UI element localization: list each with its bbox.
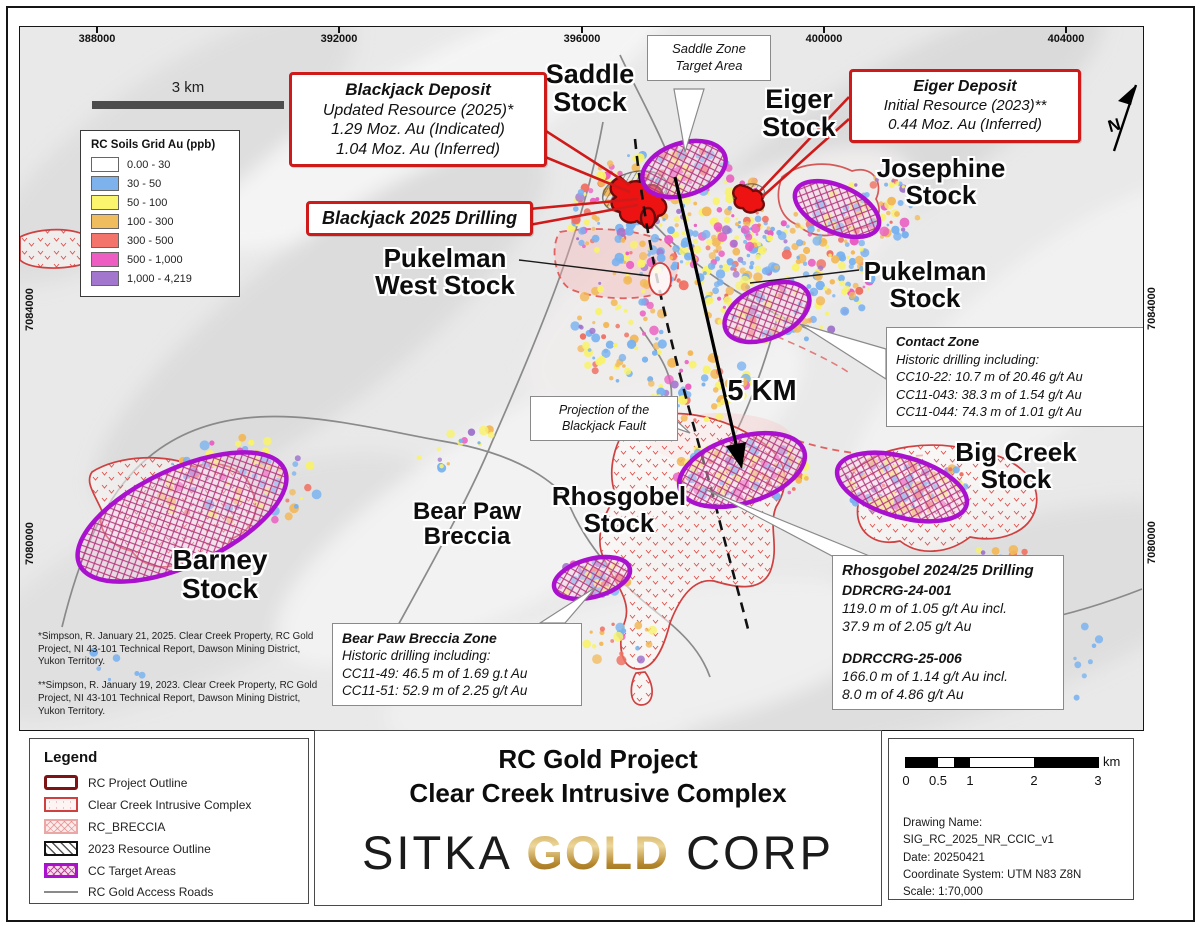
legend-item-label: RC_BRECCIA bbox=[88, 820, 165, 834]
label-barney-stock: BarneyStock bbox=[173, 545, 268, 603]
legend-item-label: 2023 Resource Outline bbox=[88, 842, 211, 856]
legend-item-label: Clear Creek Intrusive Complex bbox=[88, 798, 251, 812]
north-arrow-icon: N bbox=[1100, 69, 1144, 159]
drawing-info: Drawing Name: SIG_RC_2025_NR_CCIC_v1 Dat… bbox=[903, 815, 1119, 901]
soils-swatch bbox=[91, 252, 119, 267]
coord-label: 400000 bbox=[792, 33, 856, 45]
soils-label: 1,000 - 4,219 bbox=[127, 273, 192, 285]
coord-label-right: 7080000 bbox=[1146, 508, 1158, 578]
callout-bear-paw-breccia-zone: Bear Paw Breccia Zone Historic drilling … bbox=[332, 623, 582, 706]
drawing-name: Drawing Name: SIG_RC_2025_NR_CCIC_v1 bbox=[903, 815, 1119, 850]
title-block: RC Gold Project Clear Creek Intrusive Co… bbox=[314, 730, 882, 906]
soils-label: 0.00 - 30 bbox=[127, 159, 170, 171]
label-josephine-stock: JosephineStock bbox=[877, 155, 1006, 209]
legend-swatch-rc-project-outline bbox=[44, 775, 78, 790]
callout-eiger-deposit: Eiger Deposit Initial Resource (2023)** … bbox=[849, 69, 1081, 143]
callout-blackjack-2025-drilling: Blackjack 2025 Drilling bbox=[306, 201, 533, 236]
coord-label: 404000 bbox=[1034, 33, 1098, 45]
soils-legend: RC Soils Grid Au (ppb) 0.00 - 30 30 - 50… bbox=[80, 130, 240, 297]
pukelman-west-outline bbox=[649, 263, 671, 295]
scalebar-tick: 3 bbox=[1094, 773, 1101, 788]
soils-label: 300 - 500 bbox=[127, 235, 173, 247]
drawing-date: Date: 20250421 bbox=[903, 850, 1119, 867]
info-block: km 0 0.5 1 2 3 Drawing Name: SIG_RC_2025… bbox=[888, 738, 1134, 900]
label-rhosgobel-stock: RhosgobelStock bbox=[552, 483, 686, 537]
label-bear-paw-breccia: Bear PawBreccia bbox=[413, 500, 521, 550]
soils-swatch bbox=[91, 195, 119, 210]
sitka-gold-corp-logo: SITKA GOLD CORP bbox=[315, 825, 881, 880]
drawing-scale: Scale: 1:70,000 bbox=[903, 884, 1119, 901]
coord-label-left: 7084000 bbox=[24, 275, 36, 345]
scalebar-tick: 0.5 bbox=[929, 773, 947, 788]
footnote-1: *Simpson, R. January 21, 2025. Clear Cre… bbox=[38, 631, 330, 669]
map-title-line2: Clear Creek Intrusive Complex bbox=[315, 777, 881, 811]
footer-scalebar: km 0 0.5 1 2 3 bbox=[903, 757, 1119, 801]
label-eiger-stock: EigerStock bbox=[762, 85, 836, 141]
legend-item-label: RC Gold Access Roads bbox=[88, 885, 213, 899]
label-pukelman-west-stock: PukelmanWest Stock bbox=[375, 245, 515, 299]
soils-label: 500 - 1,000 bbox=[127, 254, 183, 266]
legend-swatch-2023-resource bbox=[44, 841, 78, 856]
map-scalebar bbox=[92, 101, 284, 109]
legend-swatch-cc-target bbox=[44, 863, 78, 878]
callout-rhosgobel-drilling: Rhosgobel 2024/25 Drilling DDRCRG-24-001… bbox=[832, 555, 1064, 710]
label-pukelman-stock: PukelmanStock bbox=[864, 258, 987, 312]
coord-label: 392000 bbox=[307, 33, 371, 45]
callout-saddle-zone-target: Saddle ZoneTarget Area bbox=[647, 35, 771, 81]
coord-label-left: 7080000 bbox=[24, 509, 36, 579]
logo-corp: CORP bbox=[670, 826, 834, 879]
label-big-creek-stock: Big CreekStock bbox=[955, 439, 1076, 493]
scalebar-tick: 0 bbox=[902, 773, 909, 788]
coord-label-right: 7084000 bbox=[1146, 274, 1158, 344]
soils-swatch bbox=[91, 271, 119, 286]
footnotes: *Simpson, R. January 21, 2025. Clear Cre… bbox=[38, 631, 330, 729]
soils-label: 50 - 100 bbox=[127, 197, 167, 209]
callout-blackjack-fault-projection: Projection of theBlackjack Fault bbox=[530, 396, 678, 441]
legend-title: Legend bbox=[44, 749, 294, 766]
coord-label: 396000 bbox=[550, 33, 614, 45]
callout-contact-zone: Contact Zone Historic drilling including… bbox=[886, 327, 1144, 427]
soils-swatch bbox=[91, 233, 119, 248]
legend-item-label: RC Project Outline bbox=[88, 776, 187, 790]
footnote-2: **Simpson, R. January 19, 2023. Clear Cr… bbox=[38, 680, 330, 718]
logo-gold: GOLD bbox=[526, 826, 670, 879]
coord-label: 388000 bbox=[65, 33, 129, 45]
soils-label: 100 - 300 bbox=[127, 216, 173, 228]
legend-swatch-roads bbox=[44, 891, 78, 893]
callout-blackjack-deposit: Blackjack Deposit Updated Resource (2025… bbox=[289, 72, 547, 167]
map-scalebar-label: 3 km bbox=[172, 79, 205, 96]
legend-item-label: CC Target Areas bbox=[88, 864, 176, 878]
soils-swatch bbox=[91, 157, 119, 172]
soils-swatch bbox=[91, 214, 119, 229]
map-legend: Legend RC Project Outline Clear Creek In… bbox=[29, 738, 309, 904]
soils-label: 30 - 50 bbox=[127, 178, 161, 190]
label-5km-distance: 5 KM bbox=[727, 375, 796, 408]
scalebar-tick: 1 bbox=[966, 773, 973, 788]
logo-sitka: SITKA bbox=[362, 826, 526, 879]
scalebar-tick: 2 bbox=[1030, 773, 1037, 788]
map-sheet: 388000 392000 396000 400000 404000 70840… bbox=[6, 6, 1195, 922]
north-label: N bbox=[1106, 115, 1123, 137]
legend-swatch-breccia bbox=[44, 819, 78, 834]
legend-swatch-ccic bbox=[44, 797, 78, 812]
soils-legend-title: RC Soils Grid Au (ppb) bbox=[91, 139, 229, 151]
map-title-line1: RC Gold Project bbox=[315, 743, 881, 777]
label-saddle-stock: SaddleStock bbox=[546, 60, 635, 116]
coordinate-system: Coordinate System: UTM N83 Z8N bbox=[903, 867, 1119, 884]
scalebar-unit: km bbox=[1103, 754, 1120, 769]
soils-swatch bbox=[91, 176, 119, 191]
map-area: 388000 392000 396000 400000 404000 70840… bbox=[19, 26, 1144, 731]
